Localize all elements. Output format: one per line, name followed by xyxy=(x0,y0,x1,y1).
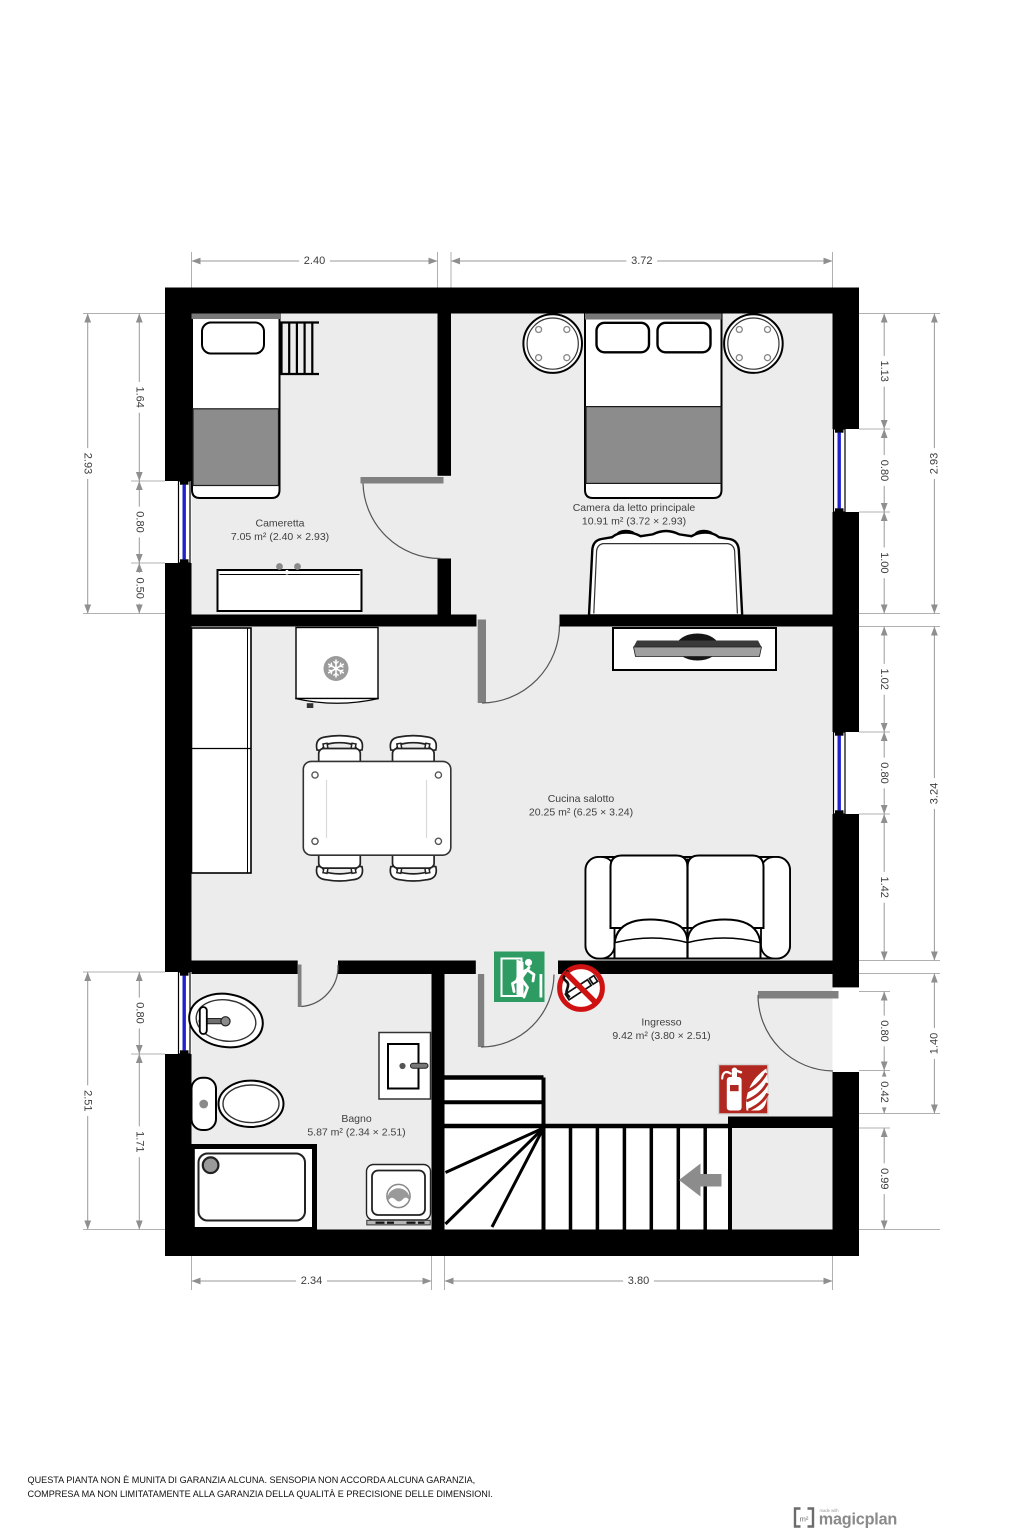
svg-text:Camera da letto principale: Camera da letto principale xyxy=(573,502,696,514)
svg-text:0.50: 0.50 xyxy=(133,577,145,598)
svg-text:1.40: 1.40 xyxy=(928,1033,940,1054)
svg-text:3.80: 3.80 xyxy=(628,1275,649,1287)
svg-text:0.80: 0.80 xyxy=(133,1002,145,1023)
svg-text:1.42: 1.42 xyxy=(878,876,890,897)
svg-text:1.02: 1.02 xyxy=(878,668,890,689)
svg-text:0.80: 0.80 xyxy=(133,511,145,532)
svg-text:1.64: 1.64 xyxy=(133,386,145,407)
svg-text:3.24: 3.24 xyxy=(928,783,940,804)
svg-text:COMPRESA MA NON LIMITATAMENTE: COMPRESA MA NON LIMITATAMENTE ALLA GARAN… xyxy=(28,1489,493,1499)
svg-text:QUESTA PIANTA NON È MUNITA DI: QUESTA PIANTA NON È MUNITA DI GARANZIA A… xyxy=(28,1475,476,1485)
svg-text:3.72: 3.72 xyxy=(631,255,652,267)
svg-text:7.05 m² (2.40 × 2.93): 7.05 m² (2.40 × 2.93) xyxy=(231,531,329,543)
svg-text:m²: m² xyxy=(800,1515,809,1524)
svg-text:9.42 m² (3.80 × 2.51): 9.42 m² (3.80 × 2.51) xyxy=(612,1030,710,1042)
svg-text:Cameretta: Cameretta xyxy=(255,517,304,529)
svg-text:10.91 m² (3.72 × 2.93): 10.91 m² (3.72 × 2.93) xyxy=(582,516,686,528)
svg-text:1.71: 1.71 xyxy=(133,1131,145,1152)
svg-text:0.80: 0.80 xyxy=(878,762,890,783)
svg-text:0.42: 0.42 xyxy=(878,1081,890,1102)
svg-text:Cucina salotto: Cucina salotto xyxy=(548,793,615,805)
svg-text:Bagno: Bagno xyxy=(341,1113,372,1125)
svg-text:2.40: 2.40 xyxy=(304,255,325,267)
svg-text:0.80: 0.80 xyxy=(878,1020,890,1041)
svg-text:1.13: 1.13 xyxy=(878,360,890,381)
svg-text:5.87 m² (2.34 × 2.51): 5.87 m² (2.34 × 2.51) xyxy=(307,1127,405,1139)
svg-text:magicplan: magicplan xyxy=(819,1511,897,1529)
svg-text:2.93: 2.93 xyxy=(82,453,94,474)
svg-text:Ingresso: Ingresso xyxy=(641,1017,681,1029)
svg-text:2.51: 2.51 xyxy=(82,1090,94,1111)
svg-text:0.80: 0.80 xyxy=(878,460,890,481)
svg-text:2.34: 2.34 xyxy=(301,1275,322,1287)
svg-text:0.99: 0.99 xyxy=(878,1168,890,1189)
svg-text:1.00: 1.00 xyxy=(878,552,890,573)
svg-text:20.25 m² (6.25 × 3.24): 20.25 m² (6.25 × 3.24) xyxy=(529,807,633,819)
svg-text:2.93: 2.93 xyxy=(928,453,940,474)
